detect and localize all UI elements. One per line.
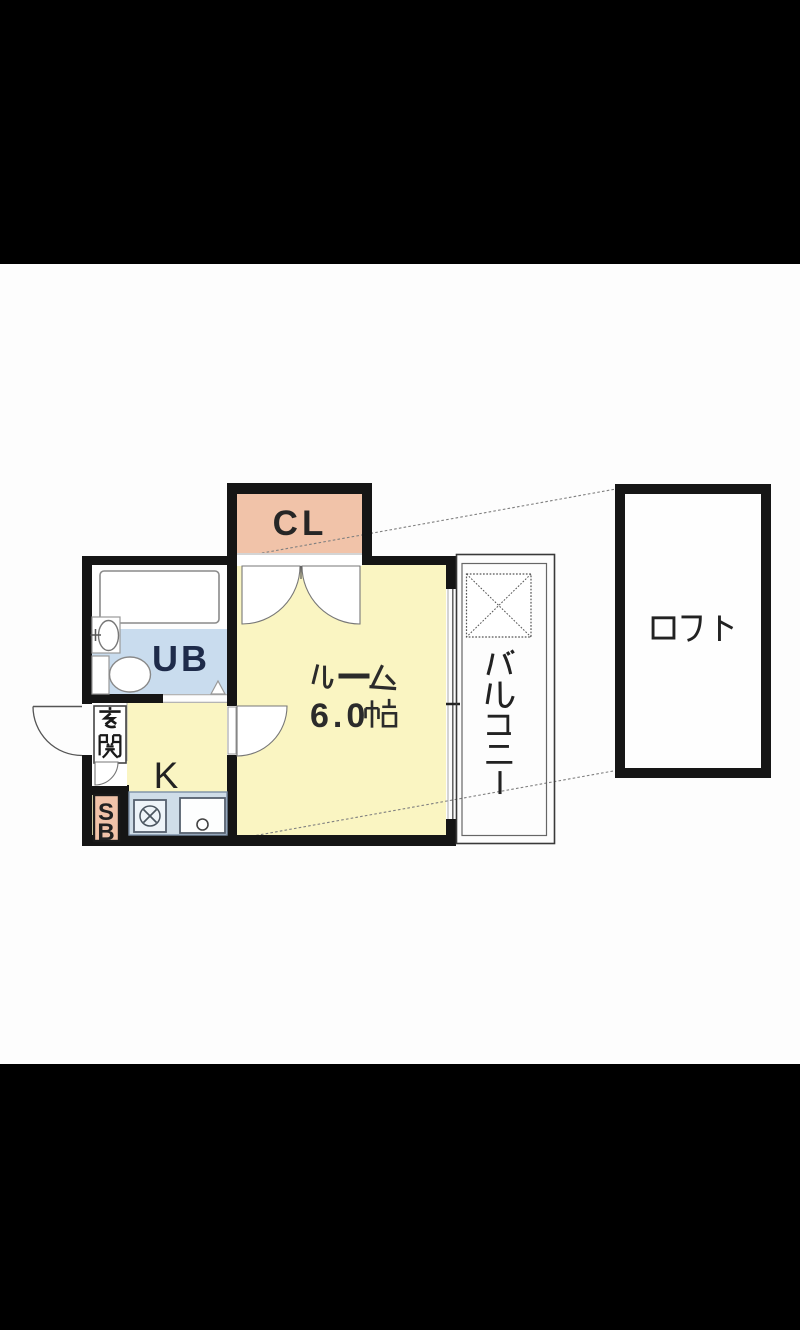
- svg-text:CL: CL: [273, 504, 328, 543]
- svg-text:UB: UB: [152, 638, 210, 679]
- svg-text:K: K: [154, 755, 179, 796]
- svg-text:6.0: 6.0: [310, 697, 369, 735]
- svg-text:B: B: [97, 819, 114, 846]
